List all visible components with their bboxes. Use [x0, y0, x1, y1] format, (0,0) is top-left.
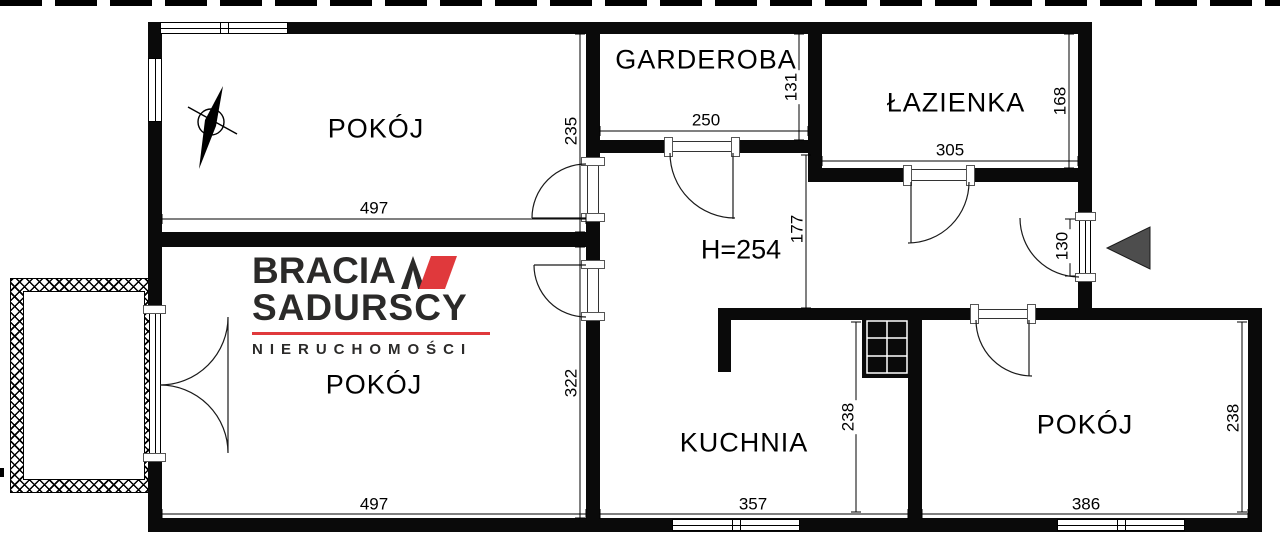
wall-segment	[162, 232, 586, 247]
floorplan-canvas: POKÓJ GARDEROBA ŁAZIENKA POKÓJ KUCHNIA P…	[0, 0, 1280, 556]
balcony-floor	[23, 291, 145, 480]
door-jamb	[143, 453, 166, 462]
room-label-kuchnia: KUCHNIA	[680, 428, 809, 459]
window-mullion	[1117, 520, 1118, 530]
edge-mark	[0, 468, 4, 477]
adjacent-structure-dashed-line	[0, 0, 1280, 6]
dim-room-bl-depth: 322	[563, 366, 580, 400]
window	[160, 22, 288, 34]
door-frame	[909, 169, 969, 181]
dim-room-tl-depth: 235	[563, 114, 580, 148]
door-jamb	[1075, 273, 1096, 282]
wall-segment	[1248, 308, 1262, 532]
wall-segment	[600, 140, 669, 153]
wall-segment	[586, 218, 600, 265]
door-swing-arc	[670, 153, 735, 219]
room-label-garderoba: GARDEROBA	[615, 45, 797, 76]
dim-room-tl-width: 497	[357, 200, 391, 217]
dim-room-br-depth: 238	[1225, 401, 1242, 435]
door-frame	[976, 309, 1031, 319]
wall-segment	[288, 22, 1092, 34]
door-swing-arc	[908, 182, 969, 243]
window-mullion	[732, 520, 733, 530]
entrance-door-leaf	[1079, 219, 1091, 277]
window	[1057, 519, 1185, 531]
door-jamb	[903, 165, 912, 186]
balcony-door-swing-arc	[160, 317, 228, 453]
dim-garderoba-depth: 131	[783, 70, 800, 104]
door-jamb	[581, 157, 605, 166]
dim-garderoba-width: 250	[689, 112, 723, 129]
wall-segment	[908, 320, 922, 518]
window-mullion	[1125, 520, 1126, 530]
ventilation-shaft	[862, 316, 912, 378]
window-mullion	[740, 520, 741, 530]
door-jamb	[664, 137, 673, 157]
dim-entry-width: 130	[1054, 229, 1071, 263]
room-label-pokoj-bottom-left: POKÓJ	[326, 370, 423, 401]
door-swing-arc	[534, 265, 586, 317]
wall-segment	[718, 308, 975, 320]
window	[148, 58, 162, 122]
door-swing-arc	[532, 164, 586, 218]
door-frame	[587, 266, 599, 317]
entrance-arrow-icon	[1107, 227, 1150, 269]
balcony	[10, 278, 158, 493]
wall-segment	[822, 168, 908, 182]
window	[672, 519, 800, 531]
brand-rule	[252, 332, 490, 335]
wall-segment	[1078, 22, 1092, 217]
door-jamb	[731, 137, 740, 157]
brand-tagline: NIERUCHOMOŚCI	[252, 341, 502, 358]
wall-segment	[586, 34, 600, 163]
wall-segment	[586, 318, 600, 518]
door-jamb	[1075, 212, 1096, 221]
room-label-lazienka: ŁAZIENKA	[887, 88, 1026, 119]
window-mullion	[228, 23, 229, 33]
wall-segment	[970, 168, 1078, 182]
door-jamb	[143, 305, 166, 314]
dim-room-br-width: 386	[1069, 496, 1103, 513]
wall-segment	[1032, 308, 1262, 320]
door-jamb	[581, 213, 605, 222]
dim-lazienka-depth: 168	[1052, 84, 1069, 118]
brand-mark-flag	[419, 256, 457, 289]
dim-kuchnia-depth: 238	[840, 400, 857, 434]
ceiling-height-label: H=254	[701, 235, 781, 266]
wall-segment	[808, 34, 822, 182]
wall-segment	[735, 140, 808, 153]
room-label-pokoj-bottom-right: POKÓJ	[1037, 410, 1134, 441]
door-jamb	[966, 165, 975, 186]
balcony-door-frame	[149, 311, 161, 457]
wall-segment	[718, 308, 731, 372]
brand-name-line2: SADURSCY	[252, 289, 502, 326]
window-mullion	[220, 23, 221, 33]
dim-kuchnia-width: 357	[736, 496, 770, 513]
north-arrow-icon	[188, 86, 237, 169]
door-jamb	[970, 304, 979, 324]
wall-segment	[148, 122, 162, 312]
door-jamb	[1027, 304, 1036, 324]
brand-logo-mark-icon	[401, 256, 465, 289]
door-frame	[670, 141, 734, 152]
dim-room-bl-width: 497	[357, 496, 391, 513]
door-swing-arc	[976, 320, 1032, 376]
door-jamb	[581, 312, 605, 321]
door-frame	[587, 164, 599, 214]
dim-hall-depth: 177	[789, 212, 806, 246]
door-jamb	[581, 260, 605, 269]
dim-lazienka-width: 305	[933, 142, 967, 159]
brand-logo: BRACIA SADURSCY NIERUCHOMOŚCI	[252, 254, 502, 358]
brand-name-line1: BRACIA	[252, 254, 396, 288]
room-label-pokoj-top-left: POKÓJ	[328, 114, 425, 145]
